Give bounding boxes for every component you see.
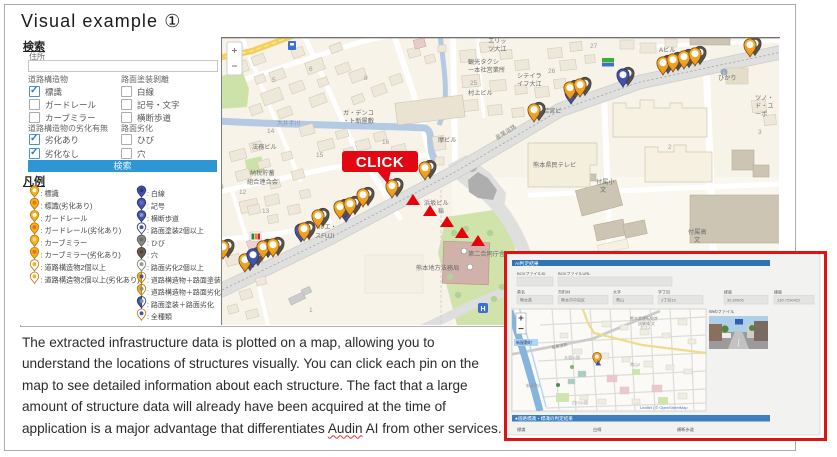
svg-text:エリッ: エリッ bbox=[488, 38, 507, 45]
svg-text:県名: 県名 bbox=[517, 289, 525, 295]
svg-text:: カーブミラー(劣化あり): : カーブミラー(劣化あり) bbox=[41, 251, 121, 260]
svg-text:130.7290422: 130.7290422 bbox=[777, 298, 801, 303]
svg-text:熊本市中央区: 熊本市中央区 bbox=[561, 297, 585, 303]
svg-text:15: 15 bbox=[316, 152, 324, 159]
svg-text:白線: 白線 bbox=[593, 426, 602, 433]
svg-text:ド・ユ: ド・ユ bbox=[755, 103, 774, 110]
svg-text:熊本県: 熊本県 bbox=[520, 297, 532, 303]
svg-text:: 横断歩道: : 横断歩道 bbox=[147, 214, 179, 223]
svg-text:横断歩道: 横断歩道 bbox=[677, 426, 695, 433]
svg-text:付属高: 付属高 bbox=[688, 228, 707, 236]
svg-text:AI判定結果: AI判定結果 bbox=[515, 260, 539, 267]
svg-text:水道公園: 水道公園 bbox=[564, 354, 580, 360]
svg-text:法務ビル: 法務ビル bbox=[252, 143, 277, 151]
svg-text:: ガードレール(劣化あり): : ガードレール(劣化あり) bbox=[41, 226, 122, 235]
svg-text:: ひび: : ひび bbox=[147, 239, 165, 247]
svg-text:熊本県民テレビ: 熊本県民テレビ bbox=[533, 161, 576, 169]
svg-text:32.80905: 32.80905 bbox=[727, 298, 744, 303]
svg-text:市町村: 市町村 bbox=[558, 289, 570, 295]
svg-text:白川公園: 白川公園 bbox=[572, 399, 588, 405]
svg-text:納税貯蓄: 納税貯蓄 bbox=[250, 169, 275, 177]
svg-text:: 全種類: : 全種類 bbox=[147, 312, 172, 321]
svg-text:経度: 経度 bbox=[724, 289, 732, 295]
svg-text:ーポ: ーポ bbox=[755, 110, 767, 118]
svg-text:27: 27 bbox=[590, 43, 598, 50]
svg-text:: 道路構造物2個以上(劣化あり): : 道路構造物2個以上(劣化あり) bbox=[41, 275, 140, 284]
svg-text:: ガードレール: : ガードレール bbox=[41, 214, 88, 223]
svg-text:Leaflet | © OpenStreetMap: Leaflet | © OpenStreetMap bbox=[640, 405, 688, 410]
svg-text:ー本社営業所: ー本社営業所 bbox=[468, 66, 505, 74]
svg-text:: 記号: : 記号 bbox=[147, 202, 165, 211]
svg-text:大井手川: 大井手川 bbox=[277, 119, 300, 127]
svg-text:帯山: 帯山 bbox=[616, 297, 624, 303]
svg-text:2: 2 bbox=[668, 144, 672, 151]
svg-text:ツ大江: ツ大江 bbox=[488, 45, 507, 53]
svg-text:緯度: 緯度 bbox=[774, 289, 782, 295]
svg-text:大字: 大字 bbox=[613, 289, 621, 295]
svg-text:: 路面塗装＋路面劣化: : 路面塗装＋路面劣化 bbox=[147, 300, 214, 309]
svg-text:・ト新屋敷: ・ト新屋敷 bbox=[343, 117, 374, 125]
svg-text:3: 3 bbox=[758, 129, 762, 136]
svg-text:稲: 稲 bbox=[438, 207, 444, 215]
svg-text:新屋敷2: 新屋敷2 bbox=[526, 382, 541, 388]
svg-text:イフ大江: イフ大江 bbox=[517, 80, 542, 88]
svg-text:浜坂ビル: 浜坂ビル bbox=[424, 199, 449, 207]
svg-text:8: 8 bbox=[364, 75, 368, 82]
svg-text:シテイラ: シテイラ bbox=[517, 73, 542, 80]
svg-text:1: 1 bbox=[309, 307, 313, 314]
svg-text:6: 6 bbox=[309, 66, 313, 73]
svg-text:ツノ・: ツノ・ bbox=[755, 95, 774, 102]
svg-text:5: 5 bbox=[272, 77, 276, 84]
svg-text:若宮ビ: 若宮ビ bbox=[543, 107, 562, 115]
svg-text:: 道路構造物＋路面劣化: : 道路構造物＋路面劣化 bbox=[147, 288, 221, 297]
svg-text:: カーブミラー: : カーブミラー bbox=[41, 238, 88, 247]
svg-text:: 白線: : 白線 bbox=[147, 189, 165, 198]
svg-text:12: 12 bbox=[239, 189, 247, 196]
svg-text:摩ビル: 摩ビル bbox=[438, 136, 457, 144]
svg-text:熊本地方法務局: 熊本地方法務局 bbox=[416, 264, 459, 272]
svg-text:文: 文 bbox=[600, 186, 606, 194]
svg-text:: 路面劣化2個以上: : 路面劣化2個以上 bbox=[147, 263, 204, 272]
svg-text:: 標識(劣化あり): : 標識(劣化あり) bbox=[41, 202, 93, 211]
svg-text:CLICK: CLICK bbox=[356, 154, 404, 171]
svg-text:25: 25 bbox=[470, 80, 478, 87]
svg-text:字丁目: 字丁目 bbox=[658, 289, 670, 295]
svg-text:: 路面塗装2個以上: : 路面塗装2個以上 bbox=[147, 226, 204, 235]
svg-text:ガ・デンコ: ガ・デンコ bbox=[343, 109, 374, 117]
svg-text:13: 13 bbox=[262, 208, 270, 215]
svg-text:14: 14 bbox=[267, 128, 275, 135]
svg-text:: 標識: : 標識 bbox=[41, 189, 59, 198]
svg-text:組合連合会: 組合連合会 bbox=[247, 178, 278, 186]
svg-text:26: 26 bbox=[548, 68, 556, 75]
svg-text:付属小: 付属小 bbox=[596, 178, 615, 186]
svg-text:H: H bbox=[480, 306, 485, 313]
svg-text:16: 16 bbox=[382, 139, 390, 146]
svg-text:文: 文 bbox=[694, 236, 700, 244]
svg-text:: 道路構造物＋路面塗装: : 道路構造物＋路面塗装 bbox=[147, 275, 221, 284]
svg-text:試験場 文: 試験場 文 bbox=[638, 320, 655, 326]
svg-text:: 道路構造物2個以上: : 道路構造物2個以上 bbox=[41, 263, 107, 272]
svg-text:ひかり: ひかり bbox=[718, 75, 737, 82]
svg-text:観光タクシ: 観光タクシ bbox=[468, 58, 499, 66]
svg-text:Aビル: Aビル bbox=[659, 46, 676, 54]
svg-text:帯山2: 帯山2 bbox=[630, 361, 641, 367]
svg-text:BOXファイルID: BOXファイルID bbox=[517, 271, 546, 276]
svg-text:スFUJI: スFUJI bbox=[315, 233, 335, 240]
svg-text:3丁目15: 3丁目15 bbox=[661, 298, 676, 303]
svg-text:BOXファイルURL: BOXファイルURL bbox=[558, 271, 591, 276]
svg-text:第二合同庁舎: 第二合同庁舎 bbox=[468, 250, 505, 258]
svg-text:村上ビル: 村上ビル bbox=[468, 89, 493, 97]
svg-text:: 穴: : 穴 bbox=[147, 251, 158, 260]
